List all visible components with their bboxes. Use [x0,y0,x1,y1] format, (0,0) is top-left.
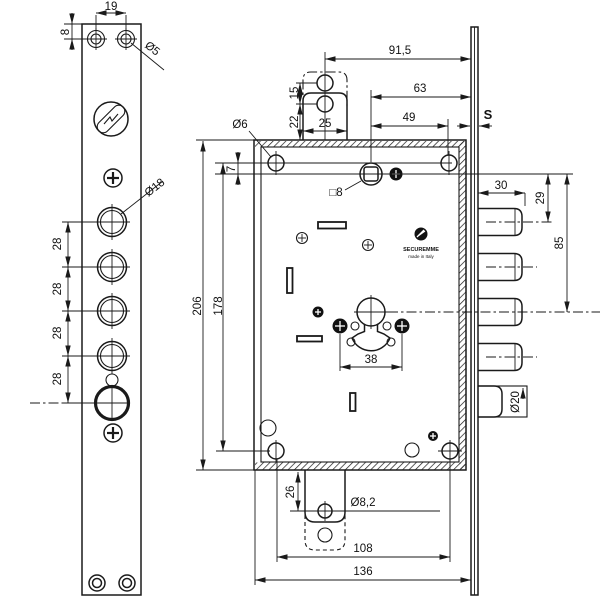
dim-178: 178 [213,296,225,315]
case-bottom-edge [255,463,465,470]
cylinder-hole-faceplate [94,385,130,421]
dim-26: 26 [285,486,297,499]
dim-29: 29 [535,192,547,205]
dim-19: 19 [105,1,118,13]
dim-dia8-2: Ø8,2 [351,497,376,509]
dim-28-1: 28 [52,238,64,251]
screw [363,240,374,251]
dim-30: 30 [495,180,508,192]
dim-136: 136 [353,566,372,578]
case-right-edge [460,141,466,469]
dim-28-2: 28 [52,283,64,296]
dim-108: 108 [353,543,372,555]
dim-s-thickness: S [484,107,493,122]
dim-28-4: 28 [52,373,64,386]
cylinder-fixing-screw-left [333,319,348,334]
case-top-edge [255,141,465,147]
black-screw [428,431,438,441]
dim-dia6: Ø6 [232,119,247,131]
dim-square8: □8 [329,187,342,199]
dim-7: 7 [226,166,238,172]
dim-38: 38 [365,354,378,366]
dim-28-3: 28 [52,327,64,340]
dim-dia20: Ø20 [510,391,522,413]
brand-name: SECUREMME [403,247,439,253]
screw [297,233,308,244]
dim-25: 25 [319,118,332,130]
dim-206: 206 [192,296,204,315]
dim-91-5: 91,5 [389,45,411,57]
dim-63: 63 [414,83,427,95]
black-screw [313,307,324,318]
lock-drawing-canvas: 19 8 Ø5 Ø18 28 28 28 28 [0,0,600,600]
dim-15: 15 [289,87,301,100]
dim-49: 49 [403,112,416,124]
dim-22: 22 [289,116,301,129]
dim-8: 8 [60,29,72,35]
dim-85: 85 [554,237,566,250]
technical-drawing-page: 19 8 Ø5 Ø18 28 28 28 28 [0,0,600,600]
cylinder-fixing-screw-right [395,319,410,334]
brand-origin: made in Italy [408,254,434,259]
